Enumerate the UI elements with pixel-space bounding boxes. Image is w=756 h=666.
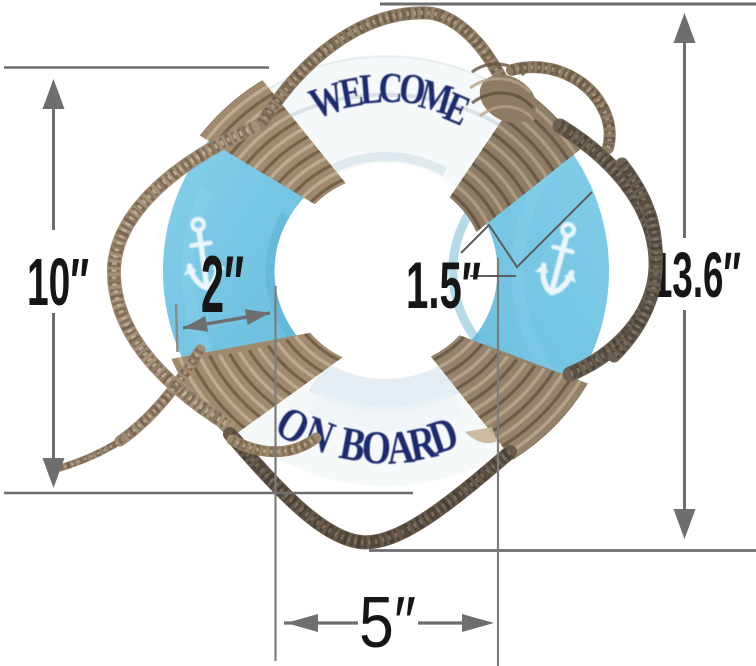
svg-text:10″: 10″ xyxy=(27,245,89,320)
svg-text:1.5″: 1.5″ xyxy=(406,248,481,322)
svg-text:13.6″: 13.6″ xyxy=(652,239,741,311)
svg-text:2″: 2″ xyxy=(201,240,244,330)
svg-text:5″: 5″ xyxy=(359,583,416,663)
